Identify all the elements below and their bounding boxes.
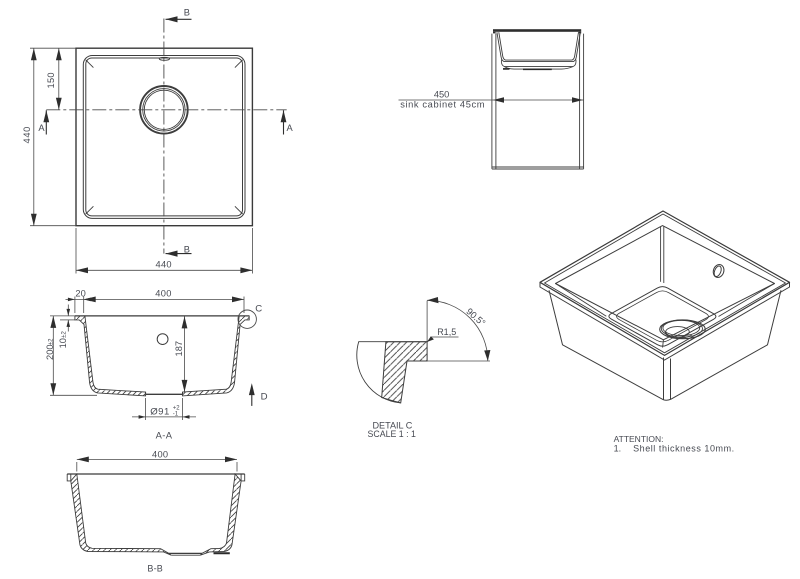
svg-text:A-A: A-A bbox=[156, 430, 173, 441]
svg-text:440: 440 bbox=[155, 260, 171, 270]
svg-text:A: A bbox=[38, 123, 45, 133]
svg-text:400: 400 bbox=[152, 449, 168, 459]
svg-text:±2: ±2 bbox=[62, 331, 68, 338]
svg-text:400: 400 bbox=[155, 289, 171, 299]
svg-text:B: B bbox=[184, 7, 190, 17]
svg-text:SCALE 1 : 1: SCALE 1 : 1 bbox=[367, 429, 416, 439]
svg-text:Ø91: Ø91 bbox=[150, 407, 170, 418]
svg-text:-1: -1 bbox=[173, 411, 179, 417]
svg-text:Shell thickness 10mm.: Shell thickness 10mm. bbox=[633, 443, 735, 453]
svg-text:±2: ±2 bbox=[48, 338, 54, 345]
svg-text:440: 440 bbox=[22, 126, 32, 143]
svg-text:A: A bbox=[287, 123, 294, 133]
svg-text:10: 10 bbox=[58, 338, 68, 348]
svg-text:B: B bbox=[184, 244, 190, 254]
svg-text:20: 20 bbox=[75, 289, 85, 299]
svg-text:C: C bbox=[255, 304, 262, 315]
svg-text:D: D bbox=[261, 392, 268, 403]
svg-text:200: 200 bbox=[45, 344, 55, 360]
svg-text:R1,5: R1,5 bbox=[437, 327, 456, 337]
svg-text:B-B: B-B bbox=[147, 563, 163, 573]
svg-text:1.: 1. bbox=[614, 443, 622, 453]
svg-text:sink cabinet 45cm: sink cabinet 45cm bbox=[400, 100, 485, 110]
svg-text:187: 187 bbox=[174, 341, 184, 357]
svg-text:450: 450 bbox=[434, 89, 450, 99]
svg-text:150: 150 bbox=[46, 72, 56, 88]
